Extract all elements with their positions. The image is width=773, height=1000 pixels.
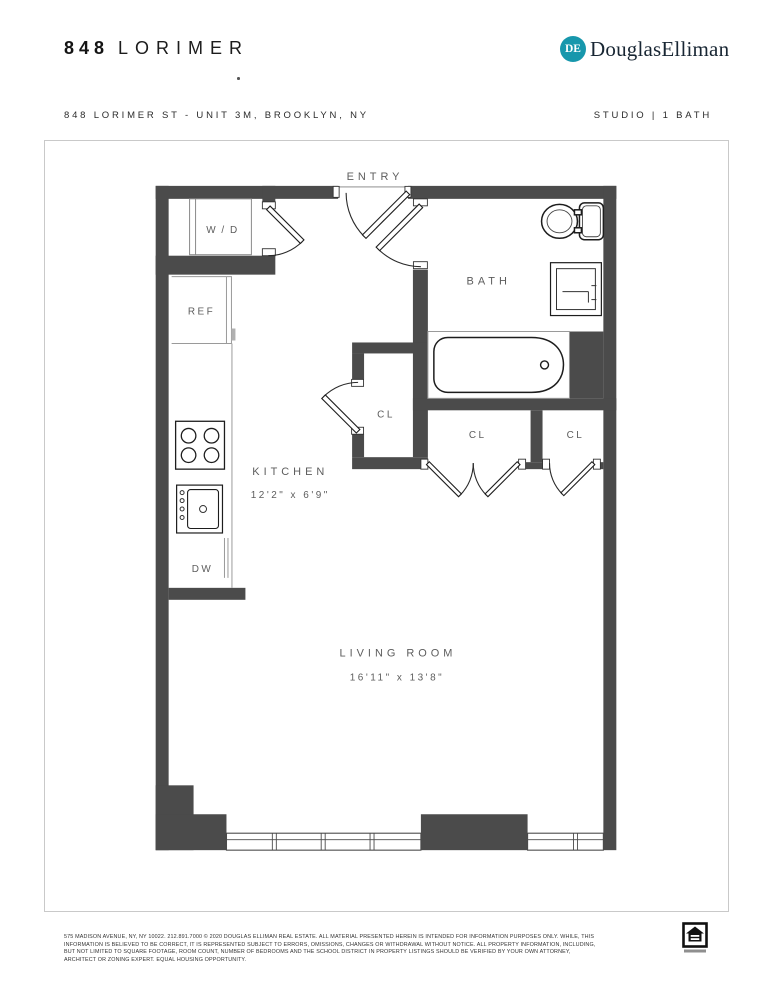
kitchen-dimensions: 12'2" x 6'9" [251, 490, 330, 501]
window-band-left [226, 833, 420, 850]
kitchen-label: KITCHEN [252, 466, 328, 478]
kitchen-sink [177, 485, 223, 533]
closet-right-label: CL [567, 430, 585, 441]
building-name: LORIMER [118, 38, 249, 58]
unit-summary: STUDIO | 1 BATH [594, 110, 712, 121]
listing-address: 848 LORIMER ST - UNIT 3M, BROOKLYN, NY [64, 110, 369, 121]
living-room-label: LIVING ROOM [340, 648, 457, 660]
kitchen-closet-door [322, 382, 360, 433]
entry-door [346, 191, 410, 238]
brand-logo: DE DouglasElliman [560, 36, 729, 62]
middle-closet-double-door [426, 462, 520, 497]
equal-housing-opportunity-icon [682, 922, 708, 958]
closet-kitchen-label: CL [377, 409, 395, 420]
window-band-right [528, 833, 604, 850]
toilet [542, 203, 604, 240]
right-closet-door [550, 462, 595, 496]
floor-plan-drawing: ENTRY BATH W / D REF KITCHEN 12'2" x 6'9… [45, 141, 728, 911]
brand-name: DouglasElliman [590, 37, 729, 62]
walls [156, 186, 617, 850]
refrigerator-label: REF [188, 307, 215, 318]
bath-label: BATH [467, 276, 511, 288]
legal-disclaimer: 575 MADISON AVENUE, NY, NY 10022. 212.89… [64, 934, 642, 964]
bath-sink [551, 263, 602, 316]
decorative-dot [237, 77, 240, 80]
stove [176, 421, 225, 469]
closet-middle-label: CL [469, 430, 487, 441]
douglas-elliman-monogram-icon: DE [560, 36, 586, 62]
page-title: 848LORIMER [64, 38, 249, 59]
bathtub [428, 332, 570, 399]
disclaimer-line: BUT NOT LIMITED TO SQUARE FOOTAGE, ROOM … [64, 949, 642, 957]
floor-plan-border: ENTRY BATH W / D REF KITCHEN 12'2" x 6'9… [44, 140, 729, 912]
entry-label: ENTRY [347, 171, 404, 183]
listing-subheader: 848 LORIMER ST - UNIT 3M, BROOKLYN, NY S… [64, 110, 712, 121]
washer-dryer-closet-door [267, 206, 304, 256]
washer-dryer-label: W / D [206, 225, 238, 236]
building-number: 848 [64, 38, 109, 58]
dishwasher-door-lines [224, 538, 227, 578]
disclaimer-line: INFORMATION IS BELIEVED TO BE CORRECT, I… [64, 942, 642, 950]
monogram-text: DE [565, 43, 581, 55]
floor-plan-sheet: 848LORIMER DE DouglasElliman 848 LORIMER… [0, 0, 773, 1000]
living-room-dimensions: 16'11" x 13'8" [350, 673, 444, 684]
disclaimer-line: 575 MADISON AVENUE, NY, NY 10022. 212.89… [64, 934, 642, 942]
dishwasher-label: DW [192, 564, 214, 575]
refrigerator-handle [231, 329, 235, 341]
disclaimer-line: ARCHITECT OR ZONING EXPERT. EQUAL HOUSIN… [64, 957, 642, 965]
